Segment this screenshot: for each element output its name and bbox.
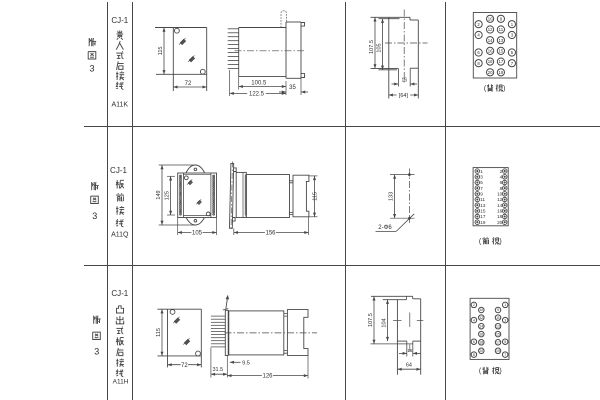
svg-text:126: 126 [262, 374, 273, 380]
svg-text:10: 10 [479, 308, 483, 312]
svg-text:35: 35 [289, 85, 296, 91]
svg-text:CJ-1: CJ-1 [111, 289, 128, 298]
svg-text:12: 12 [488, 27, 493, 32]
svg-text:156: 156 [265, 231, 276, 237]
svg-text:19: 19 [499, 70, 504, 75]
svg-text:): ) [499, 368, 501, 375]
svg-text:14: 14 [488, 38, 493, 43]
svg-text:64: 64 [406, 362, 412, 368]
svg-text:105: 105 [377, 43, 383, 52]
svg-text:15: 15 [499, 48, 504, 53]
svg-text:6: 6 [473, 340, 475, 344]
svg-text:125: 125 [165, 191, 171, 200]
svg-text:16: 16 [488, 48, 493, 53]
svg-text:A11Q: A11Q [111, 232, 129, 239]
svg-text:5: 5 [480, 180, 483, 185]
svg-text:7: 7 [480, 186, 483, 191]
svg-text:2-Φ6: 2-Φ6 [378, 225, 392, 231]
svg-text:3: 3 [480, 175, 483, 180]
svg-text:17: 17 [480, 214, 486, 219]
svg-text:3: 3 [89, 64, 94, 74]
svg-text:11: 11 [499, 27, 504, 32]
svg-text:20: 20 [497, 220, 503, 225]
svg-text:[64]: [64] [399, 93, 409, 99]
svg-text:A11H: A11H [113, 379, 129, 386]
svg-text:3: 3 [504, 318, 506, 322]
svg-text:16: 16 [479, 332, 483, 336]
svg-text:8: 8 [500, 186, 503, 191]
svg-text:7: 7 [504, 353, 506, 357]
svg-text:107.5: 107.5 [369, 40, 375, 54]
svg-text:CJ-1: CJ-1 [111, 16, 128, 25]
svg-text:100.5: 100.5 [251, 80, 267, 86]
svg-text:4: 4 [500, 175, 503, 180]
svg-text:72: 72 [185, 81, 192, 87]
svg-text:): ) [499, 238, 501, 245]
svg-text:107.5: 107.5 [368, 313, 374, 327]
svg-text:13: 13 [480, 203, 486, 208]
svg-text:149: 149 [156, 190, 162, 199]
svg-text:104: 104 [382, 318, 388, 327]
svg-text:A11K: A11K [111, 102, 128, 109]
svg-text:115: 115 [158, 47, 164, 56]
svg-text:5: 5 [504, 340, 506, 344]
svg-text:3: 3 [92, 211, 97, 221]
svg-text:16: 16 [497, 209, 503, 214]
svg-text:18: 18 [479, 341, 483, 345]
svg-text:12: 12 [497, 197, 503, 202]
svg-text:16: 16 [402, 77, 408, 83]
svg-text:9: 9 [480, 192, 483, 197]
svg-text:19: 19 [480, 220, 486, 225]
svg-text:13: 13 [496, 324, 500, 328]
svg-text:2: 2 [473, 303, 475, 307]
svg-text:9: 9 [497, 308, 499, 312]
svg-text:122.5: 122.5 [249, 92, 265, 98]
svg-text:8: 8 [473, 353, 475, 357]
svg-text:): ) [503, 85, 505, 92]
svg-text:115: 115 [156, 328, 162, 337]
svg-text:105: 105 [192, 231, 203, 237]
svg-text:15: 15 [480, 209, 486, 214]
svg-text:72: 72 [181, 363, 188, 369]
svg-text:20: 20 [479, 349, 483, 353]
svg-text:20: 20 [488, 70, 493, 75]
svg-text:17: 17 [499, 59, 504, 64]
svg-text:9.5: 9.5 [242, 360, 250, 366]
svg-text:13: 13 [499, 38, 504, 43]
svg-text:18: 18 [497, 214, 503, 219]
svg-text:15: 15 [496, 332, 500, 336]
svg-text:1: 1 [480, 169, 483, 174]
svg-text:1: 1 [504, 303, 506, 307]
svg-text:CJ-1: CJ-1 [110, 166, 127, 175]
svg-text:2: 2 [500, 169, 503, 174]
svg-text:17: 17 [496, 341, 500, 345]
svg-text:6: 6 [500, 180, 503, 185]
svg-text:10: 10 [497, 192, 503, 197]
svg-text:115: 115 [313, 192, 319, 201]
svg-text:10: 10 [488, 16, 493, 21]
svg-text:31.5: 31.5 [212, 367, 223, 373]
svg-text:11: 11 [496, 316, 500, 320]
svg-text:14: 14 [497, 203, 503, 208]
svg-text:12: 12 [479, 316, 483, 320]
svg-text:133: 133 [389, 192, 395, 201]
svg-text:14: 14 [479, 324, 483, 328]
svg-text:18: 18 [488, 59, 493, 64]
svg-text:11: 11 [480, 197, 485, 202]
svg-text:3: 3 [94, 347, 99, 357]
svg-text:4: 4 [473, 318, 475, 322]
svg-text:19: 19 [496, 349, 500, 353]
svg-text:16: 16 [407, 348, 413, 353]
